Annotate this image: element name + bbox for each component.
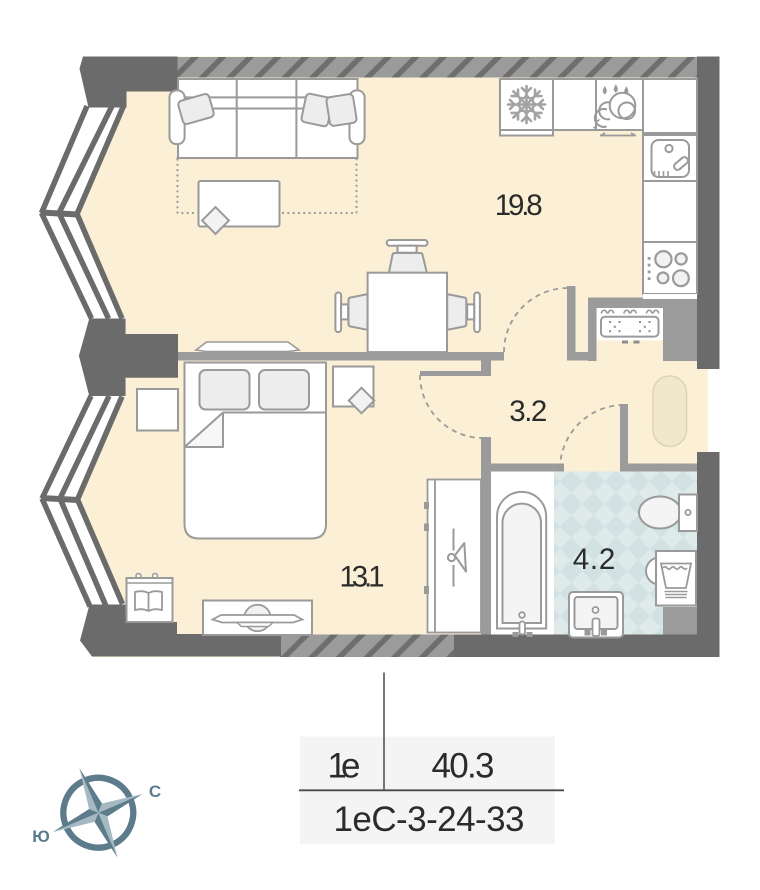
svg-text:13.1: 13.1 [340, 560, 385, 593]
svg-text:С: С [149, 782, 161, 801]
svg-text:3.2: 3.2 [509, 395, 547, 428]
svg-text:1е: 1е [328, 747, 361, 786]
svg-text:1еС-3-24-33: 1еС-3-24-33 [334, 800, 525, 839]
svg-text:Ю: Ю [32, 827, 50, 846]
svg-text:4.2: 4.2 [573, 543, 616, 576]
svg-text:19.8: 19.8 [495, 189, 543, 222]
svg-text:40.3: 40.3 [432, 747, 495, 786]
